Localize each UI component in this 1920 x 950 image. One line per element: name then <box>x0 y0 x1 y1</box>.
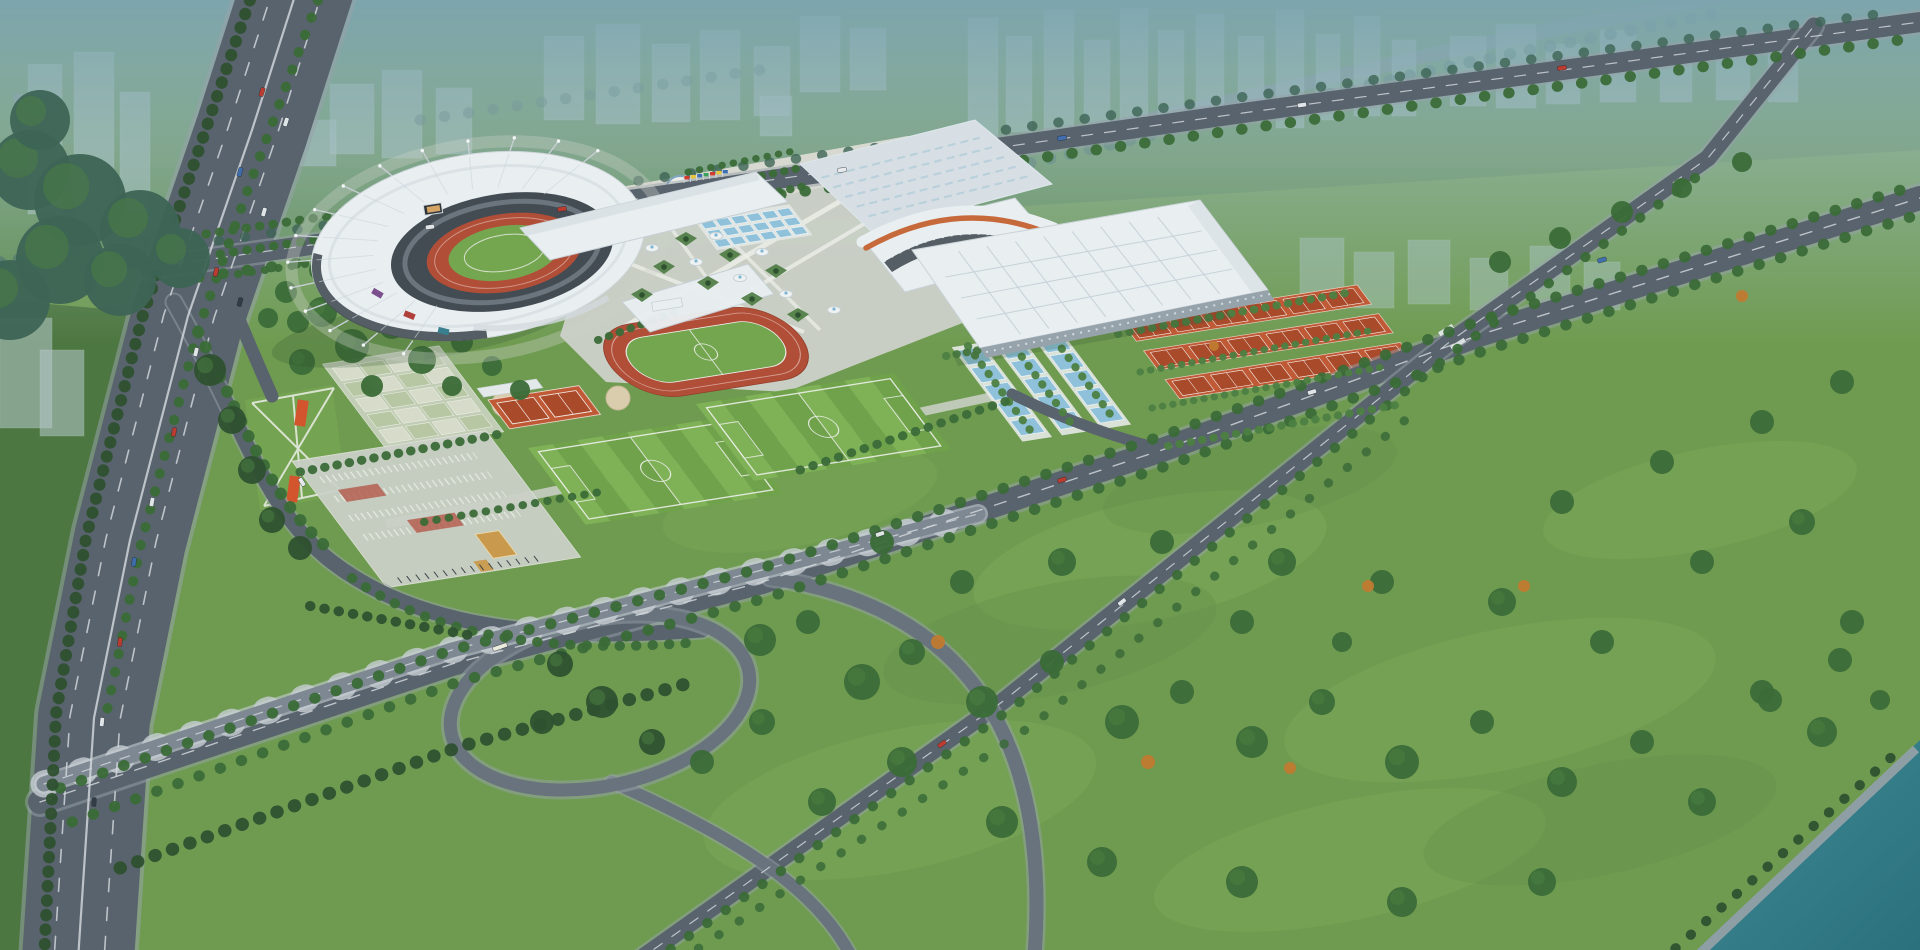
tree-highlight <box>890 750 905 765</box>
tree-highlight <box>747 627 763 643</box>
tree-clump <box>1750 410 1774 434</box>
tree-clump <box>1590 630 1614 654</box>
tree-highlight <box>1491 591 1505 605</box>
planter-tree <box>773 268 779 274</box>
autumn-tree <box>1209 341 1219 351</box>
roof-mast <box>304 309 307 312</box>
tree-clump <box>1690 550 1714 574</box>
roof-mast <box>313 208 316 211</box>
tree-highlight <box>108 198 148 238</box>
fountain-jet <box>714 233 717 236</box>
tree-clump <box>442 376 462 396</box>
autumn-tree <box>1284 762 1296 774</box>
autumn-tree <box>1362 580 1374 592</box>
tree-clump <box>1470 710 1494 734</box>
planter-tree <box>795 312 801 318</box>
tree-highlight <box>1390 890 1405 905</box>
tree-highlight <box>589 689 605 705</box>
roof-mast <box>294 234 297 237</box>
tree-clump <box>510 380 530 400</box>
vehicle <box>117 637 122 646</box>
tree-highlight <box>642 732 655 745</box>
roof-mast <box>286 260 289 263</box>
tree-highlight <box>752 712 765 725</box>
tree-highlight <box>1229 869 1245 885</box>
roof-mast <box>466 139 469 142</box>
tree-clump <box>1230 610 1254 634</box>
tree-clump <box>1489 251 1511 273</box>
tree-clump <box>1758 688 1782 712</box>
autumn-tree <box>1518 580 1530 592</box>
tree-clump <box>1150 530 1174 554</box>
tree-highlight <box>221 409 235 423</box>
tree-clump <box>1611 201 1633 223</box>
tree-clump <box>1550 490 1574 514</box>
tree-clump <box>258 308 278 328</box>
tree-clump <box>1630 730 1654 754</box>
tree-highlight <box>1051 551 1065 565</box>
flag <box>691 175 696 178</box>
roof-mast <box>289 286 292 289</box>
tree-highlight <box>989 809 1005 825</box>
tree-highlight <box>1271 551 1285 565</box>
tree-highlight <box>16 96 46 126</box>
roof-mast <box>513 136 516 139</box>
tree-highlight <box>1090 850 1105 865</box>
flag <box>716 171 721 174</box>
tree-clump <box>1040 650 1064 674</box>
flag <box>684 176 689 179</box>
fountain-jet <box>784 291 787 294</box>
tree-clump <box>1332 632 1352 652</box>
tree-clump <box>361 375 383 397</box>
tree-clump <box>1170 680 1194 704</box>
roof-mast <box>362 343 365 346</box>
tree-clump <box>288 536 312 560</box>
planter-tree <box>683 236 689 242</box>
fountain-jet <box>760 249 763 252</box>
autumn-tree <box>1141 755 1155 769</box>
aerial-rendering-stage <box>0 0 1920 950</box>
tree-highlight <box>262 510 275 523</box>
tree-highlight <box>902 642 915 655</box>
tree-highlight <box>25 225 69 269</box>
tree-highlight <box>241 459 255 473</box>
tree-highlight <box>811 791 825 805</box>
planter-tree <box>639 292 645 298</box>
tree-clump <box>530 710 554 734</box>
tree-clump <box>1370 570 1394 594</box>
planter-tree <box>705 280 711 286</box>
planter-tree <box>661 264 667 270</box>
tree-highlight <box>1108 708 1125 725</box>
flag <box>710 172 715 175</box>
roof-mast <box>328 329 331 332</box>
tree-highlight <box>848 668 866 686</box>
tree-highlight <box>1691 791 1705 805</box>
tree-highlight <box>550 654 563 667</box>
vehicle <box>99 717 104 726</box>
tree-highlight <box>969 689 985 705</box>
round-garden-plaza <box>606 386 630 410</box>
tree-clump <box>1672 178 1692 198</box>
tree-clump <box>690 750 714 774</box>
flag <box>697 174 702 177</box>
fountain-jet <box>738 275 741 278</box>
sports-complex-aerial-rendering <box>0 0 1920 950</box>
flag <box>723 170 728 173</box>
roof-mast <box>342 184 345 187</box>
tree-highlight <box>1550 770 1565 785</box>
roof-mast <box>378 164 381 167</box>
fountain-jet <box>832 307 835 310</box>
planter-tree <box>727 252 733 258</box>
autumn-tree <box>931 635 945 649</box>
tree-clump <box>796 610 820 634</box>
tree-clump <box>1650 450 1674 474</box>
tree-clump <box>1828 648 1852 672</box>
flag <box>704 173 709 176</box>
tree-highlight <box>1792 512 1805 525</box>
autumn-tree <box>1736 290 1748 302</box>
tree-clump <box>1830 370 1854 394</box>
vehicle <box>91 797 96 806</box>
tree-highlight <box>43 163 89 209</box>
background-building <box>40 350 84 436</box>
tree-highlight <box>197 357 213 373</box>
roof-mast <box>421 149 424 152</box>
roof-mast <box>557 139 560 142</box>
tree-highlight <box>1810 720 1825 735</box>
roof-mast <box>402 352 405 355</box>
tree-highlight <box>91 251 127 287</box>
fountain-jet <box>650 245 653 248</box>
tree-highlight <box>1531 871 1545 885</box>
fountain-jet <box>694 259 697 262</box>
tree-highlight <box>1239 729 1255 745</box>
planter-tree <box>749 296 755 302</box>
tree-highlight <box>1388 748 1405 765</box>
tree-clump <box>1732 152 1752 172</box>
tree-highlight <box>156 234 186 264</box>
tree-clump <box>950 570 974 594</box>
tree-clump <box>1840 610 1864 634</box>
tree-clump <box>1870 690 1890 710</box>
tree-highlight <box>1312 692 1325 705</box>
roof-mast <box>596 149 599 152</box>
tree-clump <box>1549 227 1571 249</box>
